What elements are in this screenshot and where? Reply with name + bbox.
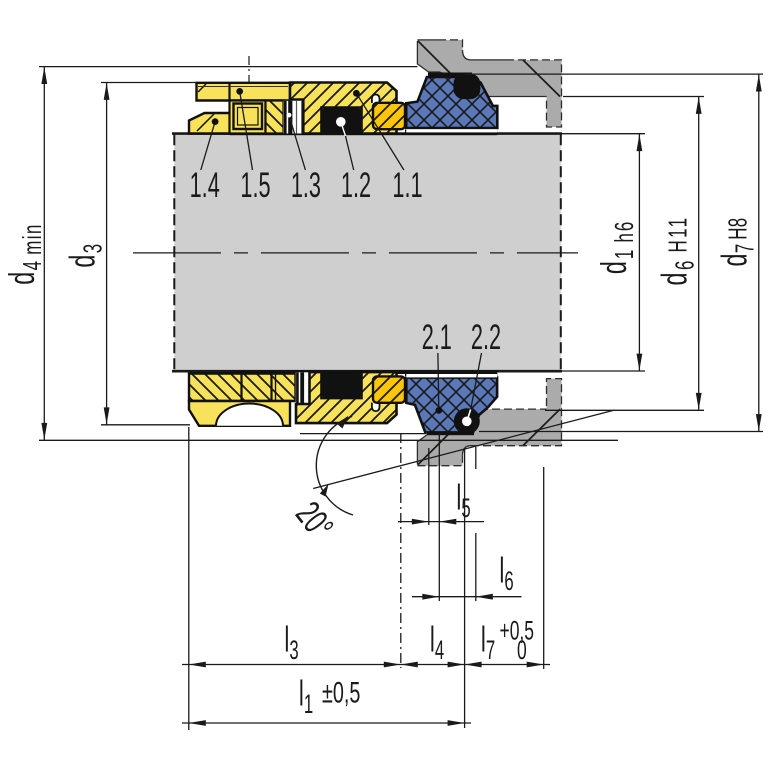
svg-text:±0,5: ±0,5 [322, 677, 360, 710]
svg-text:2.1: 2.1 [422, 319, 452, 357]
svg-text:0: 0 [517, 635, 527, 665]
svg-text:1.1: 1.1 [392, 167, 422, 205]
svg-text:2.2: 2.2 [471, 319, 501, 357]
svg-text:1.4: 1.4 [190, 167, 220, 205]
svg-text:1.5: 1.5 [240, 167, 270, 205]
svg-text:1.2: 1.2 [341, 167, 371, 205]
svg-text:1.3: 1.3 [291, 167, 321, 205]
